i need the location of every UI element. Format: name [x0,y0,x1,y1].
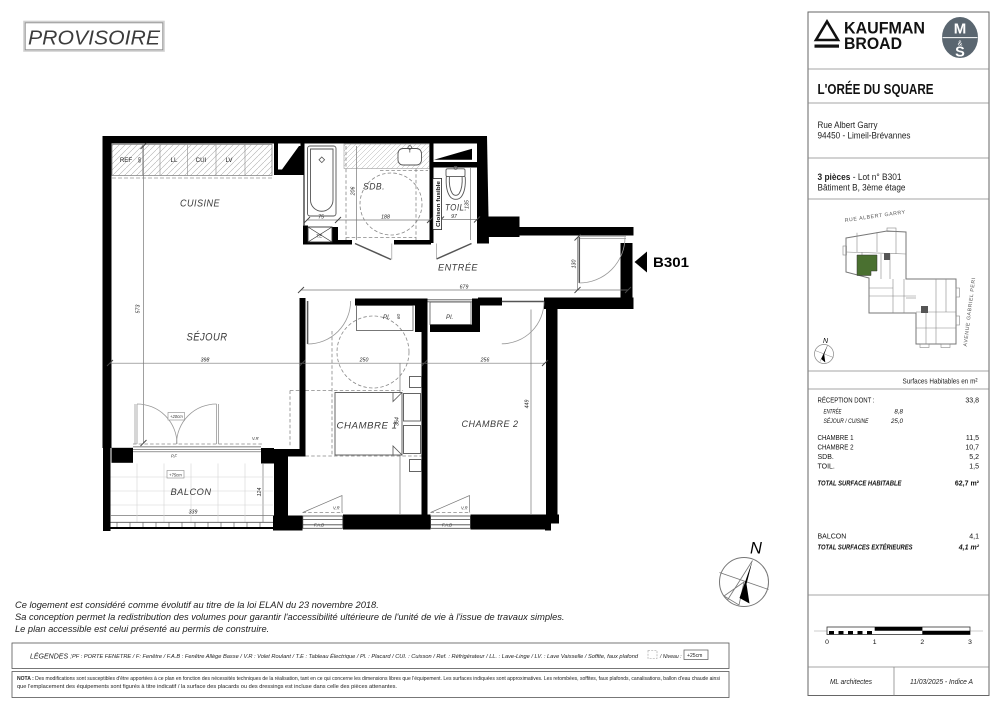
svg-text:Rue Albert Garry: Rue Albert Garry [818,120,879,130]
svg-text:CHAMBRE 1: CHAMBRE 1 [337,421,398,431]
svg-text:CUISINE: CUISINE [180,199,220,210]
svg-text:que l'emplacement des équipeme: que l'emplacement des équipements sont f… [17,684,397,690]
svg-text:P.F: P.F [171,454,177,459]
svg-text:M: M [954,21,967,38]
svg-text:N: N [750,540,762,558]
svg-text:364: 364 [394,417,400,426]
svg-text:60: 60 [396,314,402,320]
svg-text:REF: REF [120,157,133,164]
svg-text:5,2: 5,2 [969,454,979,461]
svg-text:S: S [955,45,965,61]
svg-text:TOIL.: TOIL. [818,464,835,471]
svg-text:94450 - Limeil-Brévannes: 94450 - Limeil-Brévannes [818,131,912,141]
svg-text:75: 75 [318,214,324,220]
svg-text:Pl.: Pl. [383,314,390,321]
svg-text:CUI: CUI [196,157,207,164]
svg-text:BALCON: BALCON [171,487,212,498]
svg-text:TOTAL SURFACE HABITABLE: TOTAL SURFACE HABITABLE [818,481,902,488]
svg-text:LV: LV [225,157,233,164]
svg-text:LL: LL [171,157,178,164]
svg-text:CHAMBRE 1: CHAMBRE 1 [818,435,854,442]
svg-text:+75cm: +75cm [169,473,182,478]
svg-text:679: 679 [460,284,469,290]
svg-text:NOTA : Des modifications sont: NOTA : Des modifications sont susceptibl… [17,676,720,682]
svg-text:B301: B301 [653,255,690,270]
svg-text:V.R: V.R [461,506,468,511]
svg-text:135: 135 [465,200,471,209]
svg-text:3: 3 [968,639,972,646]
svg-text:Cloison fusible: Cloison fusible [436,181,442,227]
svg-text:Ce logement est considéré comm: Ce logement est considéré comme évolutif… [15,600,379,610]
svg-text:Le plan accessible est celui p: Le plan accessible est celui présenté au… [15,624,269,634]
svg-text:LÉGENDES :: LÉGENDES : [30,652,72,661]
svg-text:4,1 m²: 4,1 m² [958,545,980,552]
svg-text:V.R: V.R [252,436,259,441]
svg-text:F.A.B: F.A.B [442,523,452,528]
svg-text:ENTRÉE: ENTRÉE [824,409,843,416]
svg-text:T.E: T.E [316,234,322,239]
svg-text:Bâtiment B, 3ème étage: Bâtiment B, 3ème étage [818,183,906,193]
svg-text:Surfaces Habitables en m²: Surfaces Habitables en m² [903,377,978,386]
svg-text:SDB.: SDB. [818,454,834,461]
svg-text:60: 60 [137,157,143,163]
svg-text:3 pièces - Lot n° B301: 3 pièces - Lot n° B301 [818,172,902,182]
svg-text:SÉJOUR / CUISINE: SÉJOUR / CUISINE [824,418,870,425]
svg-text:449: 449 [525,400,531,409]
svg-text:10,7: 10,7 [965,445,979,452]
svg-text:+20cm: +20cm [170,414,183,419]
svg-text:124: 124 [257,488,263,497]
svg-text:BALCON: BALCON [818,534,847,541]
svg-text:8,8: 8,8 [894,409,903,416]
svg-text:250: 250 [359,358,369,364]
svg-text:11,5: 11,5 [966,435,979,442]
svg-text:+25cm: +25cm [687,653,702,659]
svg-text:RÉCEPTION DONT :: RÉCEPTION DONT : [818,396,875,405]
svg-text:188: 188 [381,214,390,220]
svg-text:V.R: V.R [333,506,340,511]
svg-text:206: 206 [351,187,357,197]
svg-text:2: 2 [920,639,924,646]
svg-text:ENTRÉE: ENTRÉE [438,263,478,273]
svg-text:Sa conception permet la redist: Sa conception permet la redistribution d… [15,612,564,622]
svg-text:398: 398 [201,358,210,364]
svg-text:Pl.: Pl. [446,314,453,321]
svg-text:11/03/2025 - Indice A: 11/03/2025 - Indice A [910,679,973,686]
svg-text:33,8: 33,8 [965,398,979,405]
svg-text:L'ORÉE DU SQUARE: L'ORÉE DU SQUARE [818,81,934,98]
svg-text:62,7 m²: 62,7 m² [955,481,980,488]
svg-text:1,5: 1,5 [969,464,979,471]
svg-text:339: 339 [189,510,198,516]
svg-text:F.A.B: F.A.B [314,523,324,528]
svg-text:PROVISOIRE: PROVISOIRE [28,27,160,50]
svg-text:573: 573 [136,305,142,314]
svg-text:ML architectes: ML architectes [830,679,872,686]
svg-text:CHAMBRE 2: CHAMBRE 2 [462,419,519,429]
svg-text:4,1: 4,1 [969,534,979,541]
svg-text:25,0: 25,0 [890,418,904,425]
svg-text:SDB.: SDB. [363,182,385,192]
svg-text:1: 1 [873,639,877,646]
svg-text:SÉJOUR: SÉJOUR [187,331,228,344]
svg-text:130: 130 [572,260,578,269]
svg-text:CHAMBRE 2: CHAMBRE 2 [818,445,854,452]
svg-text:/ Niveau :: / Niveau : [659,654,682,660]
svg-text:BROAD: BROAD [844,35,902,53]
svg-text:256: 256 [480,358,490,364]
svg-text:0: 0 [825,639,829,646]
svg-text:TOTAL SURFACES EXTÉRIEURES: TOTAL SURFACES EXTÉRIEURES [818,543,913,552]
svg-text:PF : PORTE FENETRE / F: Fenê: PF : PORTE FENETRE / F: Fenêtre / F.A.B … [72,653,638,660]
